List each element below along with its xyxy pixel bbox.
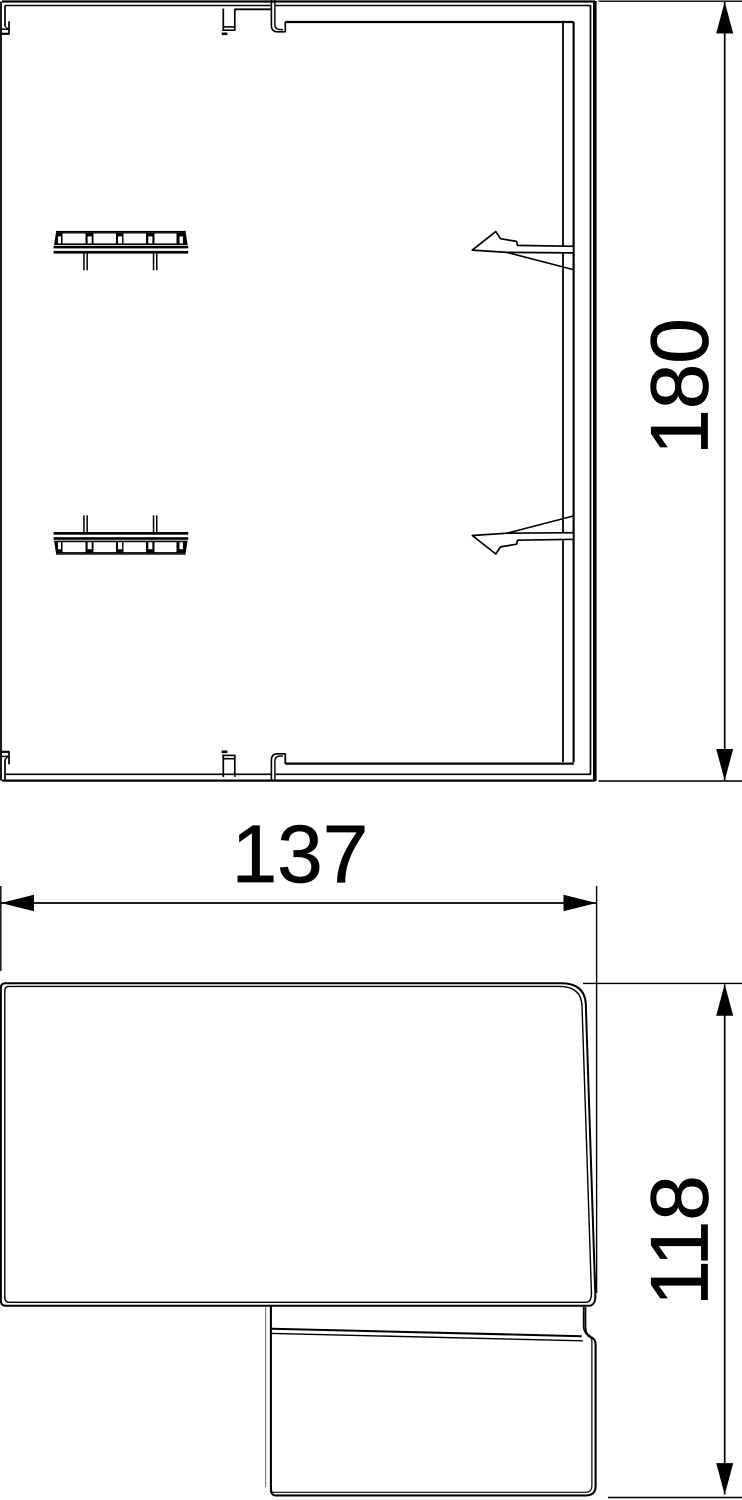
svg-text:118: 118 (635, 1175, 726, 1306)
svg-text:180: 180 (635, 318, 726, 455)
svg-text:137: 137 (232, 809, 369, 900)
